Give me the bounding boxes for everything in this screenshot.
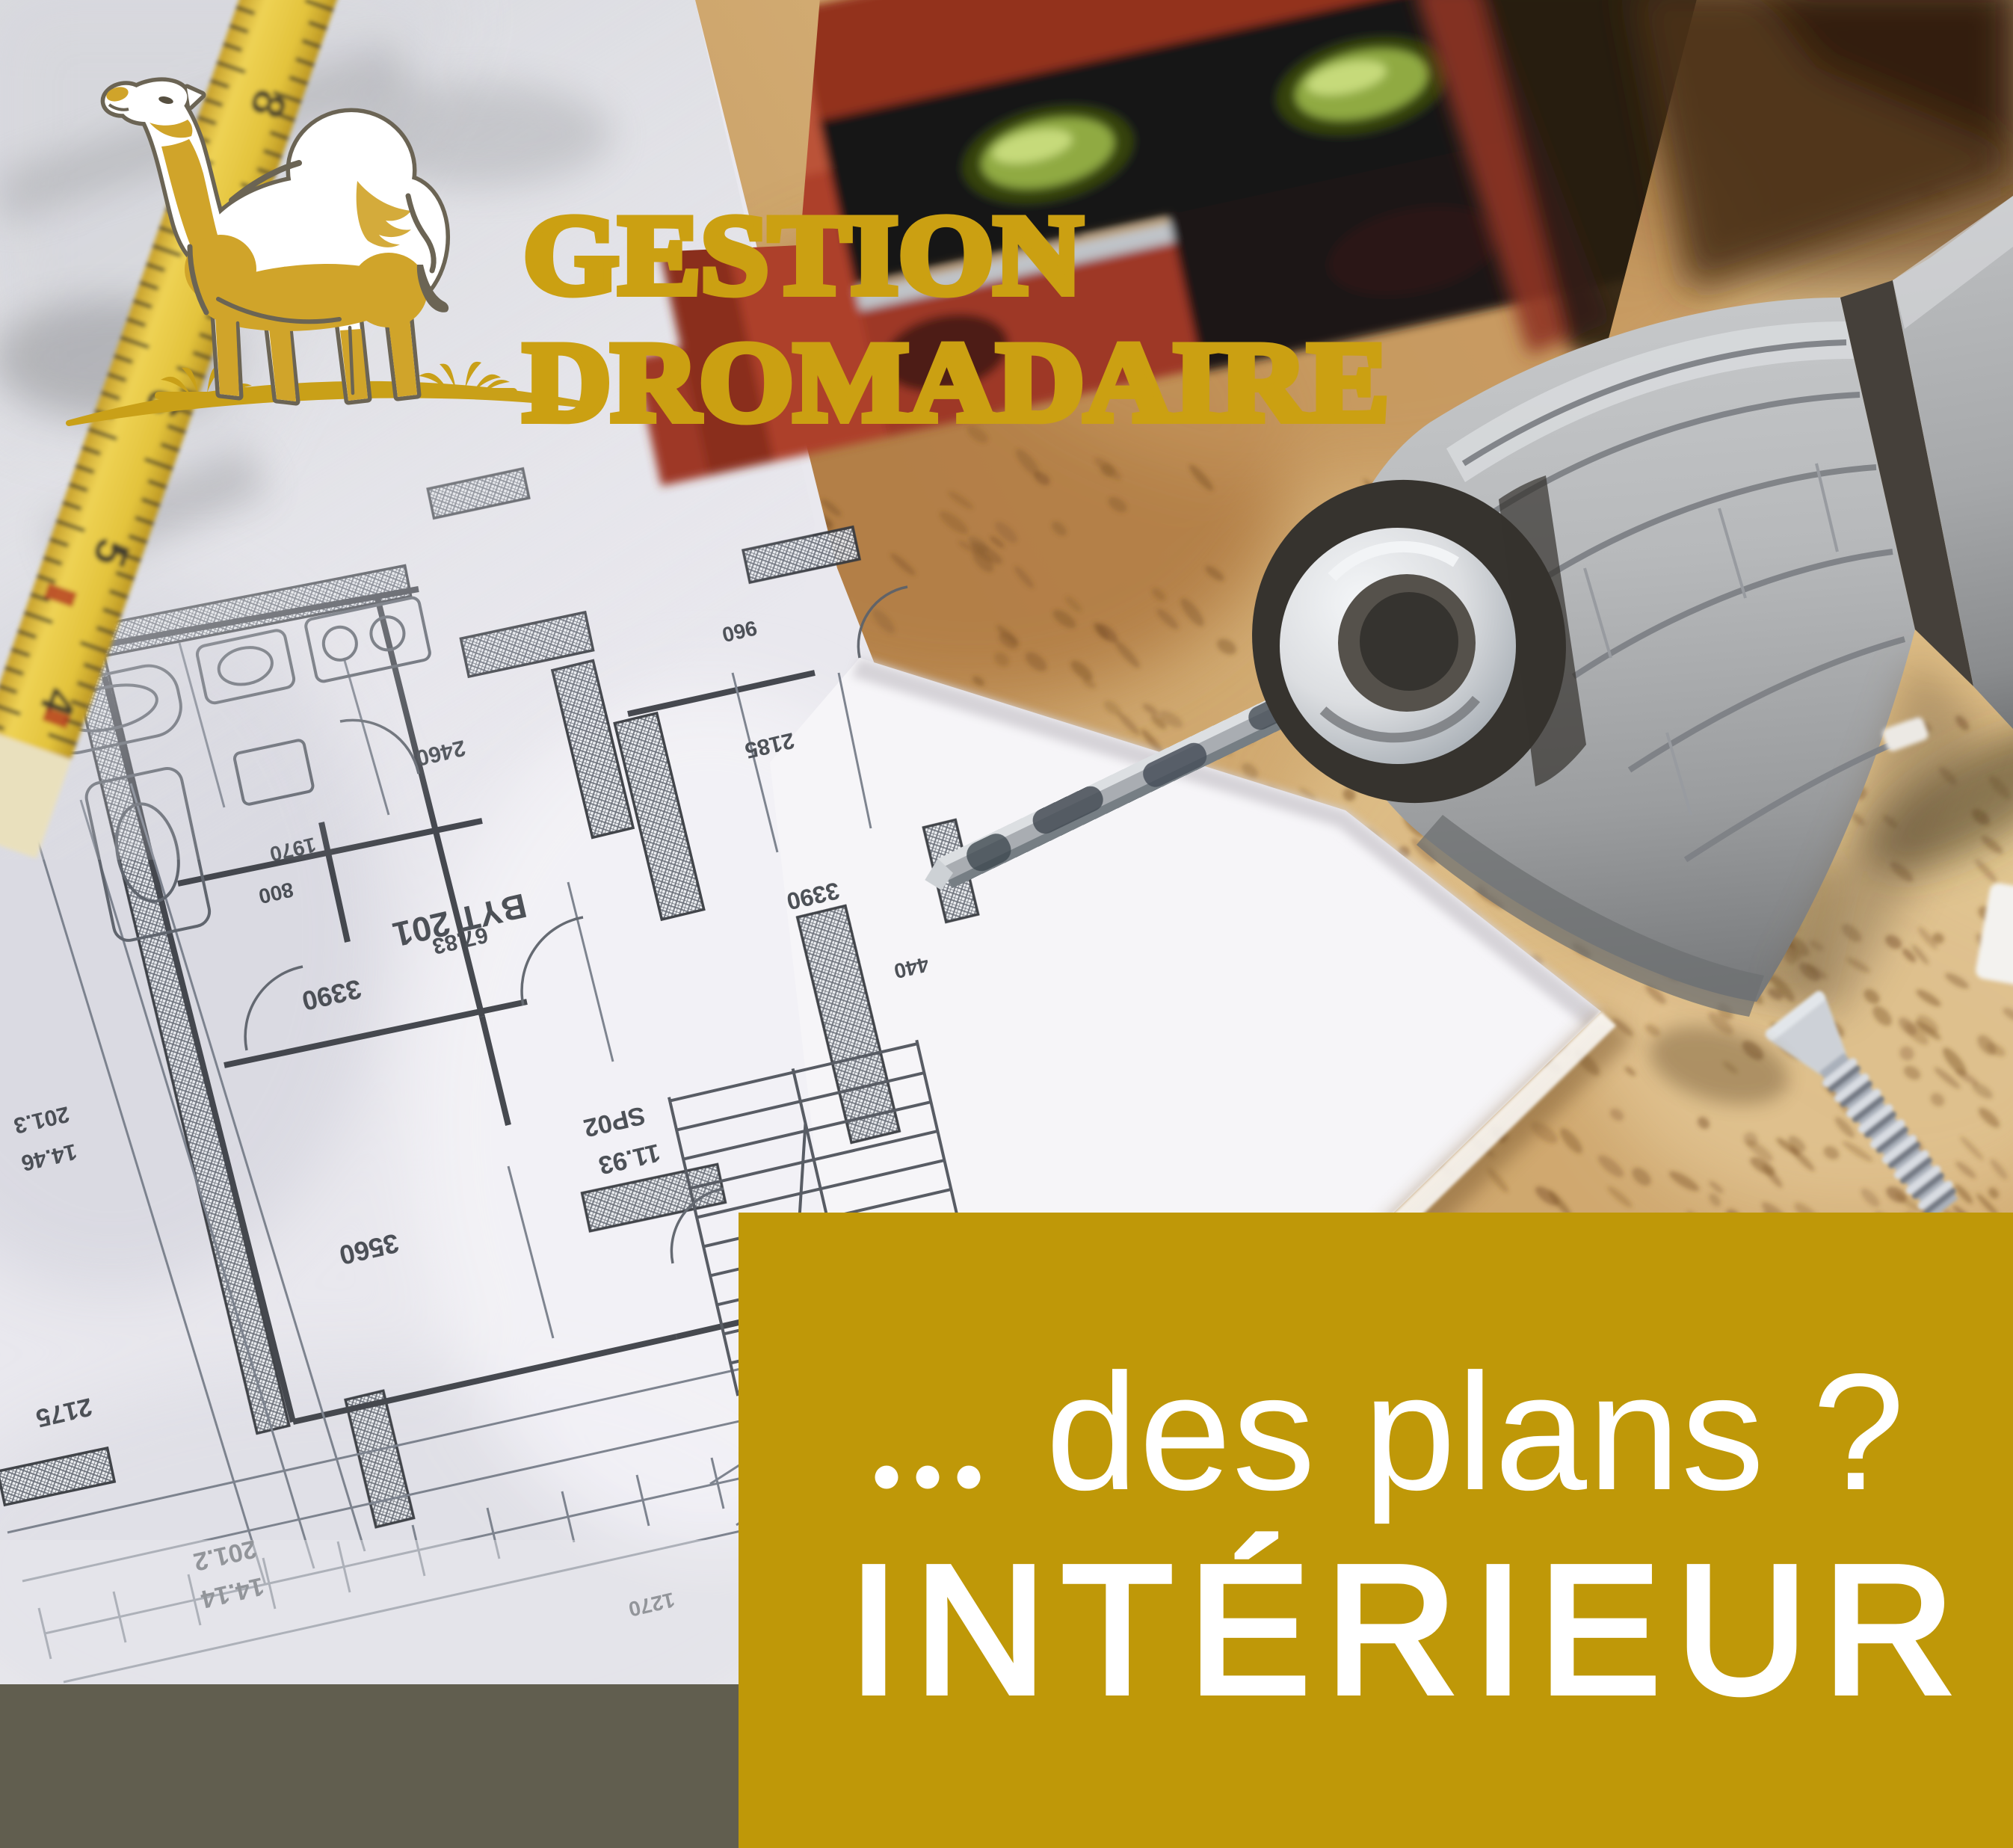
svg-text:INTÉRIEUR: INTÉRIEUR — [848, 1527, 1955, 1731]
svg-text:des plans ?: des plans ? — [1046, 1340, 1905, 1525]
svg-text:DROMADAIRE: DROMADAIRE — [523, 319, 1389, 445]
svg-text:GESTION: GESTION — [523, 192, 1082, 318]
